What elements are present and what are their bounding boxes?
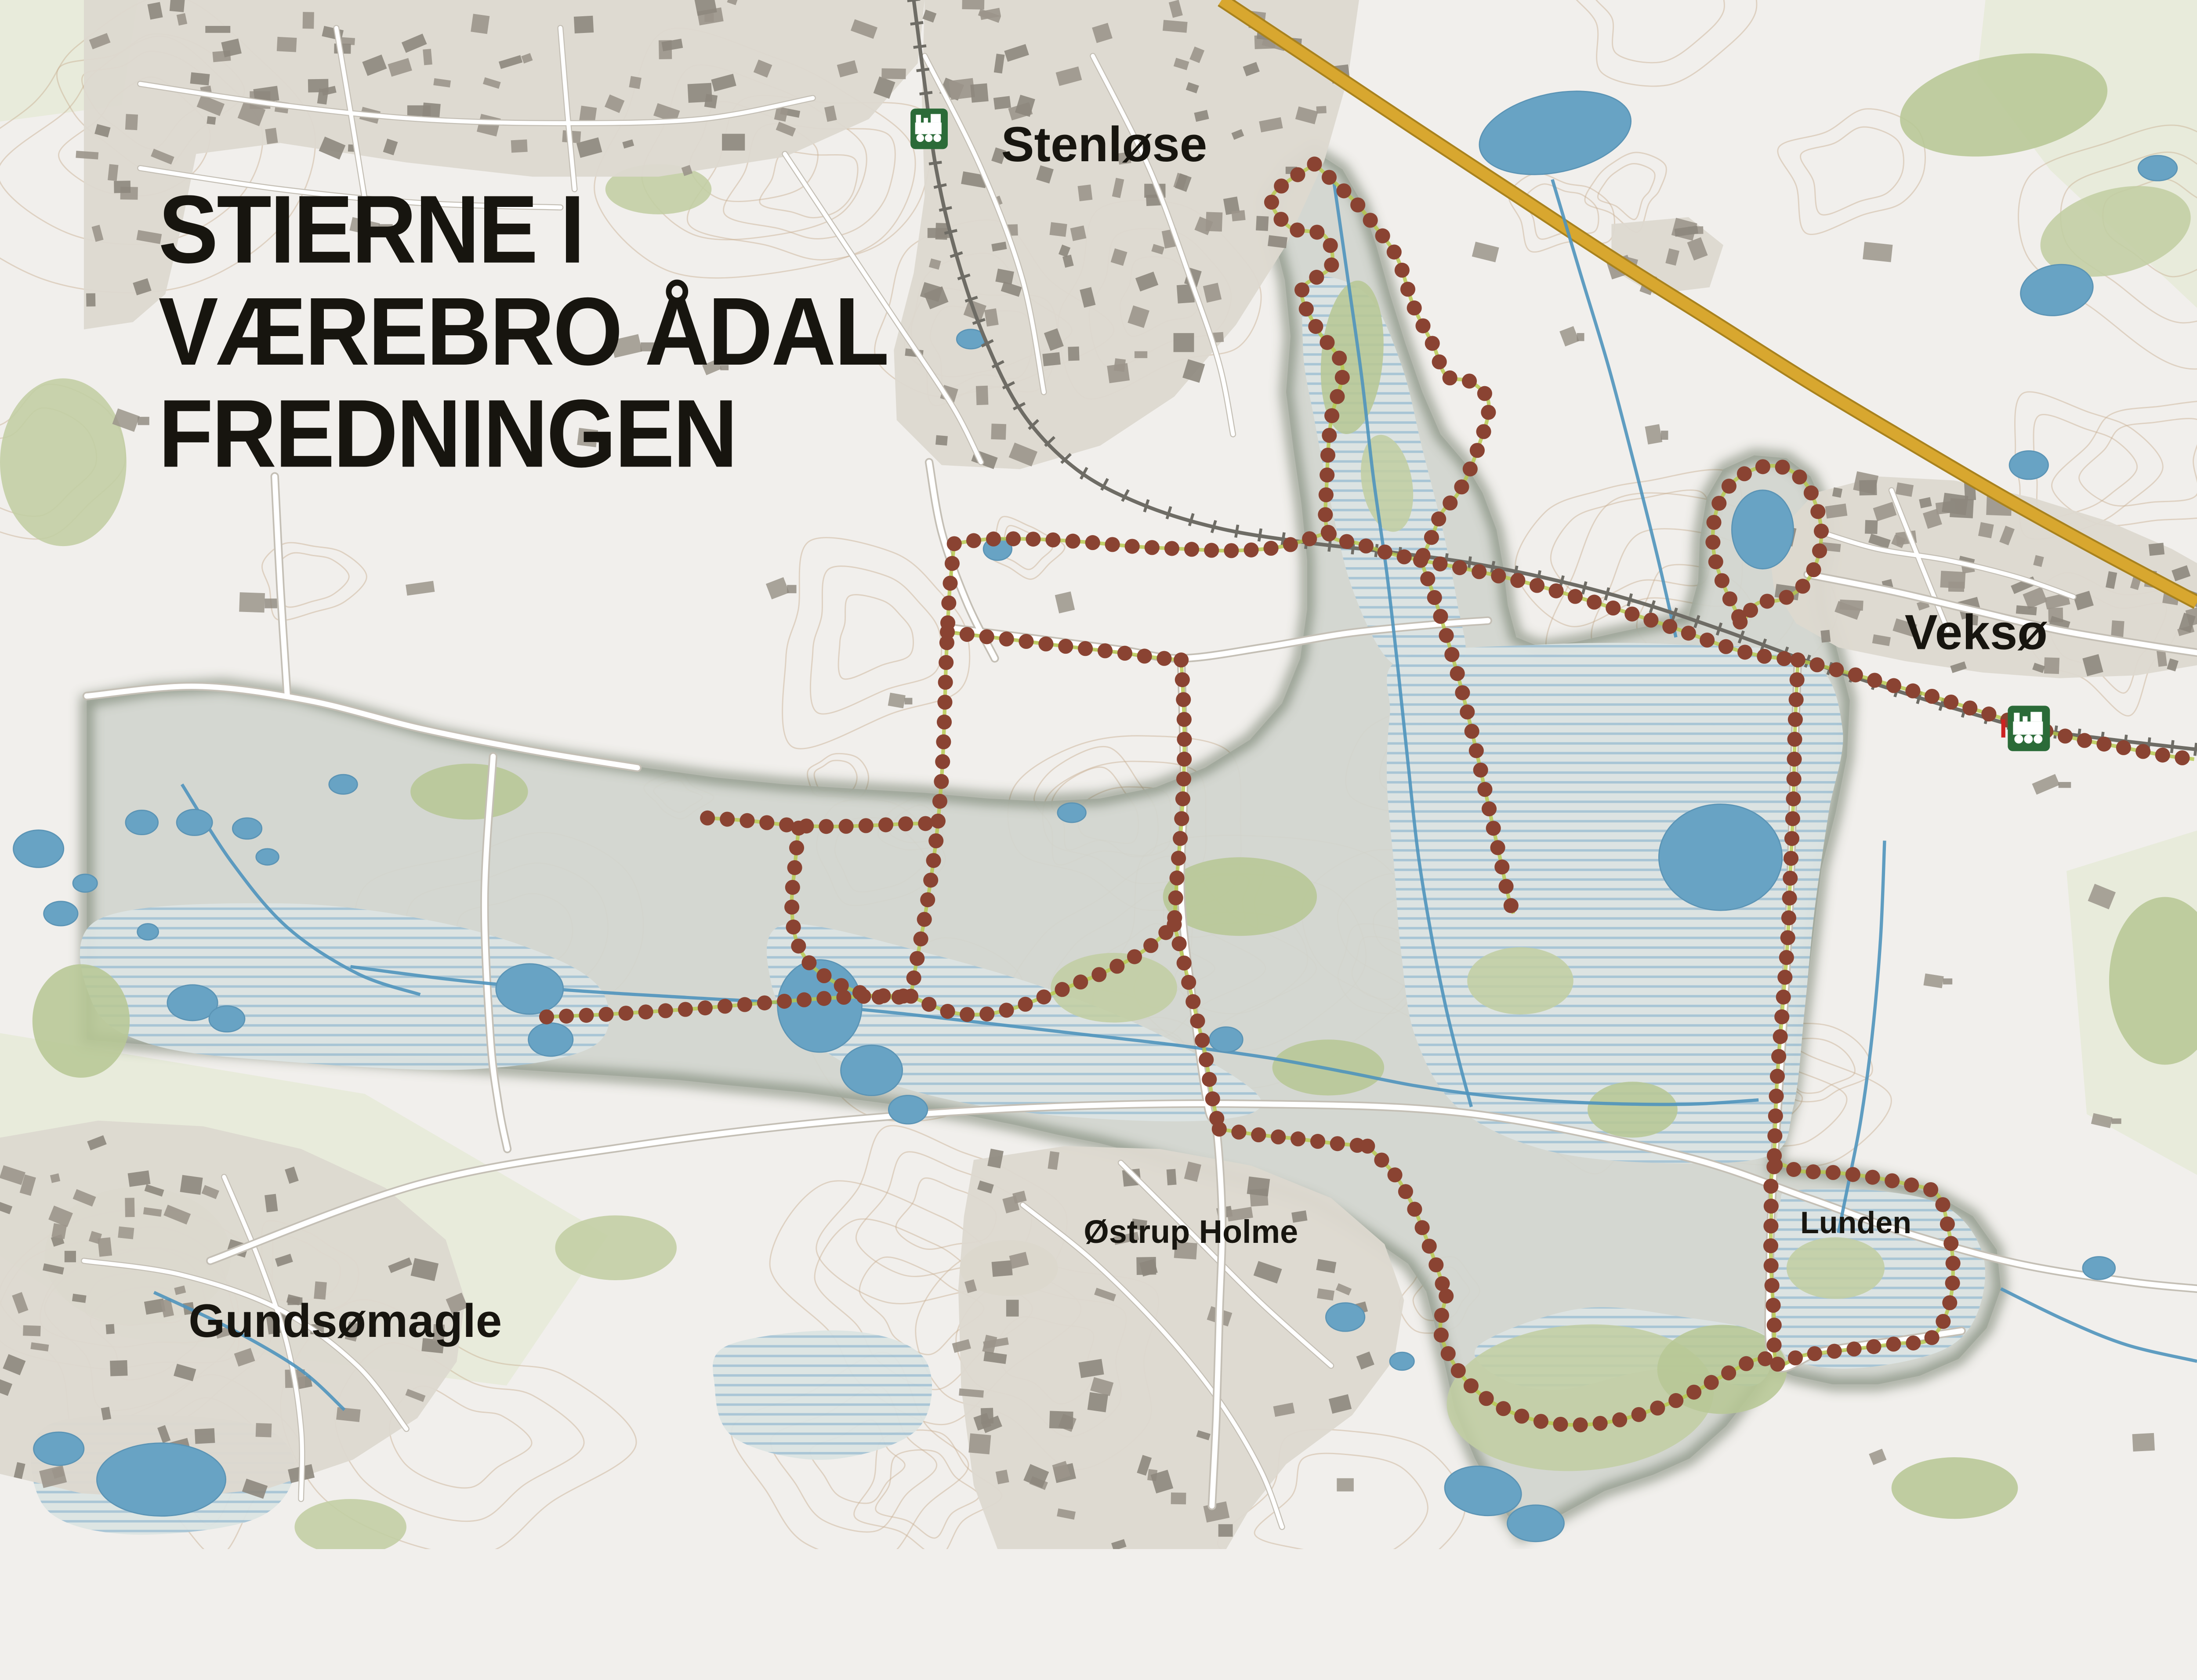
title-line-3: FREDNINGEN <box>159 380 736 487</box>
map-poster: Stenløse Veksø Gundsømagle Østrup Holme … <box>0 0 2197 1549</box>
place-label-ostrup: Østrup Holme <box>1084 1213 1298 1250</box>
place-label-stenlose: Stenløse <box>1001 116 1207 172</box>
place-label-gundsomagle: Gundsømagle <box>189 1294 502 1347</box>
map-canvas: Stenløse Veksø Gundsømagle Østrup Holme … <box>0 0 2197 1549</box>
title-line-1: STIERNE I <box>159 175 584 283</box>
place-label-lunden: Lunden <box>1800 1206 1911 1240</box>
title-line-2: VÆREBRO ÅDAL <box>159 277 888 385</box>
vekso-station <box>2001 706 2050 751</box>
stenlose-station <box>910 109 948 149</box>
place-label-vekso: Veksø <box>1905 604 2048 659</box>
